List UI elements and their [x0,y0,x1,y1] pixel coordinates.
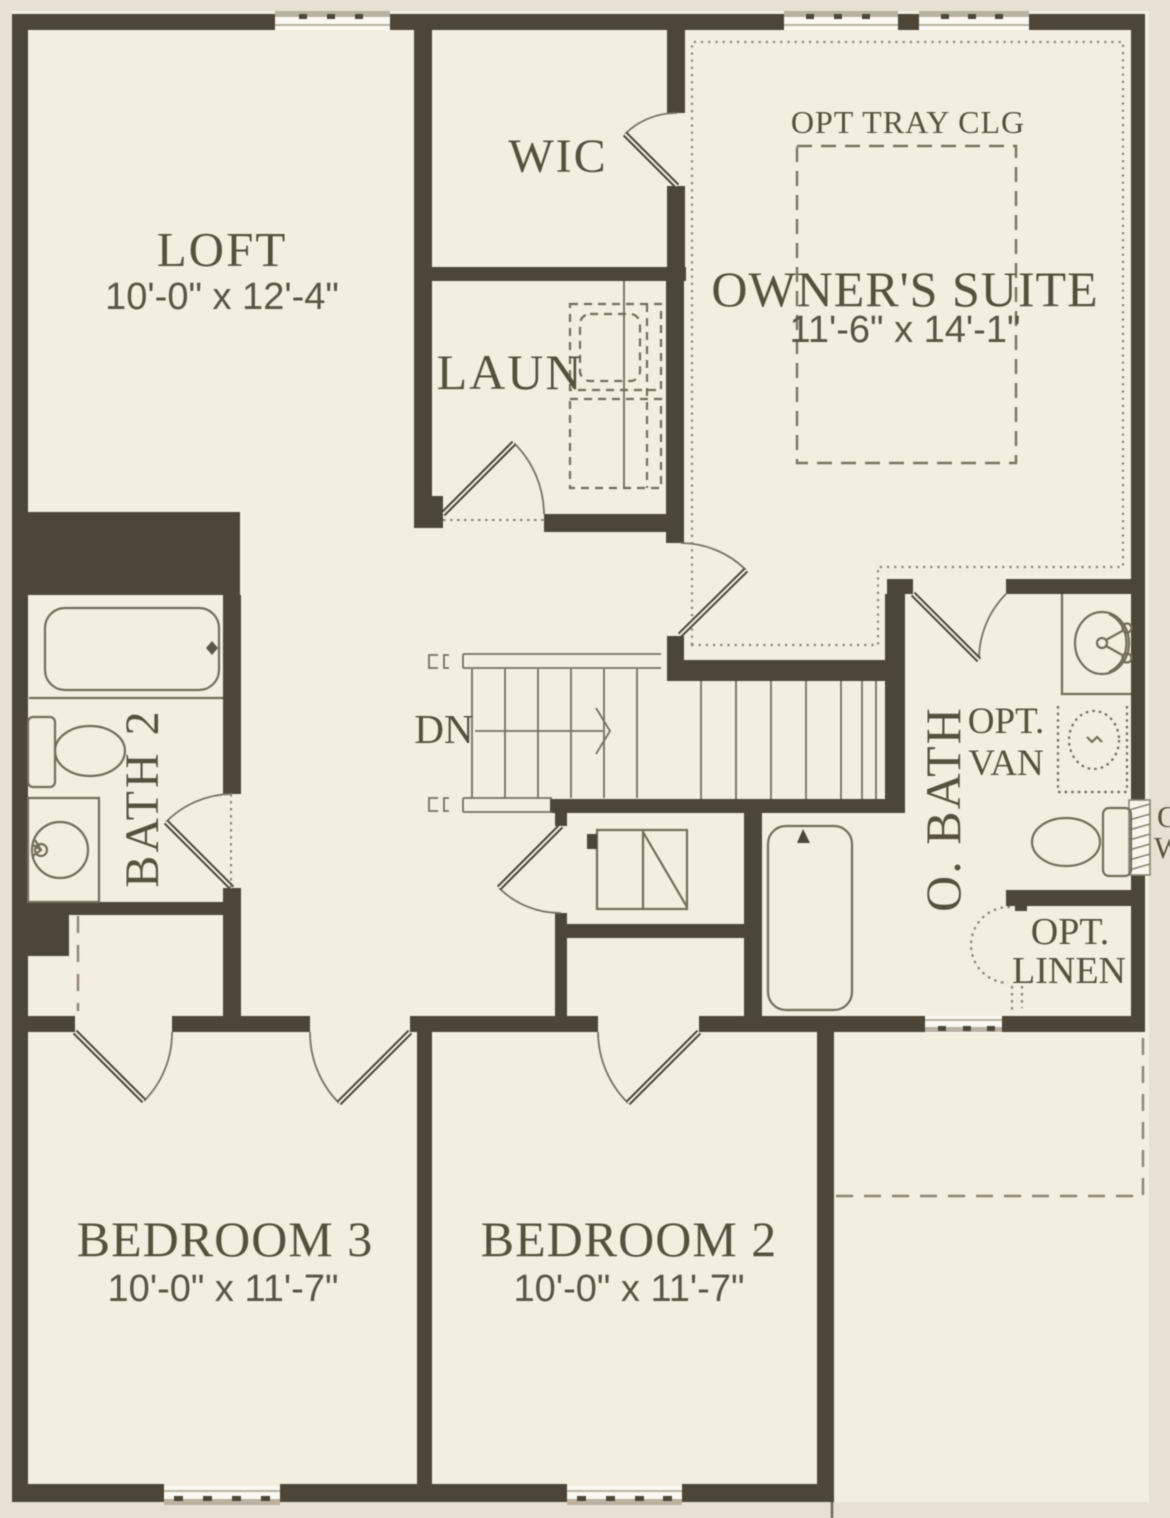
svg-text:O. BATH: O. BATH [915,706,971,912]
svg-text:OPT.: OPT. [1031,911,1109,953]
svg-text:10'-0" x 12'-4": 10'-0" x 12'-4" [105,276,339,318]
svg-text:BEDROOM 3: BEDROOM 3 [77,1211,374,1267]
svg-text:WIC: WIC [508,130,607,183]
svg-text:BEDROOM 2: BEDROOM 2 [481,1211,778,1267]
svg-text:10'-0" x 11'-7": 10'-0" x 11'-7" [514,1268,745,1310]
svg-text:W: W [1154,830,1170,865]
svg-text:OPT TRAY CLG: OPT TRAY CLG [791,104,1025,140]
svg-text:O: O [1157,799,1170,834]
svg-text:LINEN: LINEN [1012,950,1126,992]
svg-text:BATH 2: BATH 2 [116,708,169,887]
svg-text:11'-6" x 14'-1": 11'-6" x 14'-1" [790,309,1021,351]
svg-text:VAN: VAN [968,743,1043,784]
svg-text:10'-0" x 11'-7": 10'-0" x 11'-7" [108,1268,339,1310]
svg-text:DN: DN [414,706,473,752]
svg-text:OPT.: OPT. [968,701,1044,742]
svg-text:LOFT: LOFT [157,222,288,277]
svg-text:LAUN: LAUN [437,344,584,400]
